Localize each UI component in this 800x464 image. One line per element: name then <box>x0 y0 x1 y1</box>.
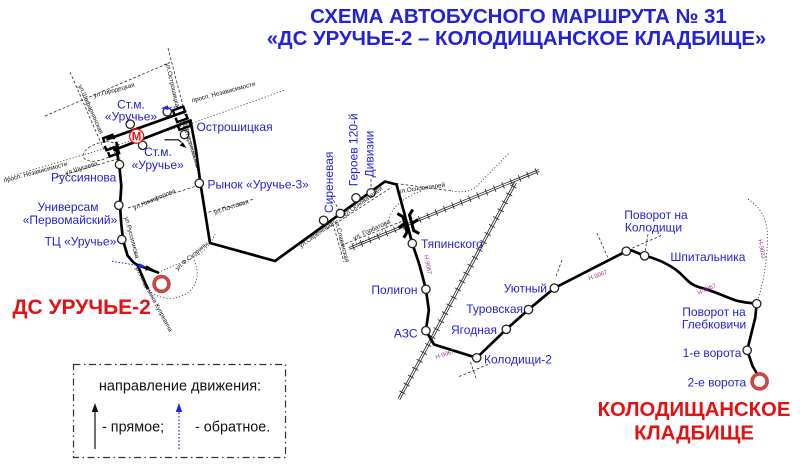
svg-text:М: М <box>132 132 142 144</box>
svg-text:Полигон: Полигон <box>371 283 417 297</box>
svg-text:Шпитальника: Шпитальника <box>670 250 745 264</box>
svg-text:Острошицкая: Острошицкая <box>197 120 273 134</box>
svg-text:Колодищи-2: Колодищи-2 <box>484 353 552 367</box>
svg-text:«ДС УРУЧЬЕ-2 – КОЛОДИЩАНСКОЕ К: «ДС УРУЧЬЕ-2 – КОЛОДИЩАНСКОЕ КЛАДБИЩЕ» <box>267 28 767 50</box>
svg-text:ТЦ «Уручье»: ТЦ «Уручье» <box>45 235 117 249</box>
svg-text:- прямое;: - прямое; <box>102 420 164 436</box>
svg-text:«Первомайский»: «Первомайский» <box>23 213 118 227</box>
svg-text:1-е ворота: 1-е ворота <box>683 346 742 360</box>
svg-text:Туровская: Туровская <box>466 302 523 316</box>
svg-text:КОЛОДИЩАНСКОЕ: КОЛОДИЩАНСКОЕ <box>598 399 791 421</box>
svg-text:Колодищи: Колодищи <box>625 221 682 235</box>
svg-text:ДС УРУЧЬЕ-2: ДС УРУЧЬЕ-2 <box>13 296 151 319</box>
svg-text:Руссиянова: Руссиянова <box>51 171 117 185</box>
svg-text:2-е ворота: 2-е ворота <box>687 376 746 390</box>
svg-text:Глебковичи: Глебковичи <box>682 317 746 331</box>
svg-text:направление движения:: направление движения: <box>99 379 261 395</box>
svg-text:АЗС: АЗС <box>394 326 418 340</box>
svg-text:«Уручье»: «Уручье» <box>132 158 184 172</box>
svg-text:Универсам: Универсам <box>38 200 99 214</box>
svg-text:«Уручье»: «Уручье» <box>105 110 157 124</box>
svg-text:Рынок «Уручье-3»: Рынок «Уручье-3» <box>208 178 310 192</box>
svg-text:Ягодная: Ягодная <box>451 323 497 337</box>
svg-text:Сиреневая: Сиреневая <box>322 152 336 213</box>
svg-text:- обратное.: - обратное. <box>195 420 270 436</box>
svg-text:КЛАДБИЩЕ: КЛАДБИЩЕ <box>634 423 754 445</box>
svg-text:Дивизии: Дивизии <box>362 131 376 178</box>
svg-text:СХЕМА АВТОБУСНОГО МАРШРУТА № 3: СХЕМА АВТОБУСНОГО МАРШРУТА № 31 <box>310 5 727 28</box>
svg-text:Героев 120-й: Героев 120-й <box>346 113 360 186</box>
svg-text:Ст.м.: Ст.м. <box>144 145 172 159</box>
svg-text:Тяпинского: Тяпинского <box>421 237 483 251</box>
svg-text:Уютный: Уютный <box>504 282 547 296</box>
